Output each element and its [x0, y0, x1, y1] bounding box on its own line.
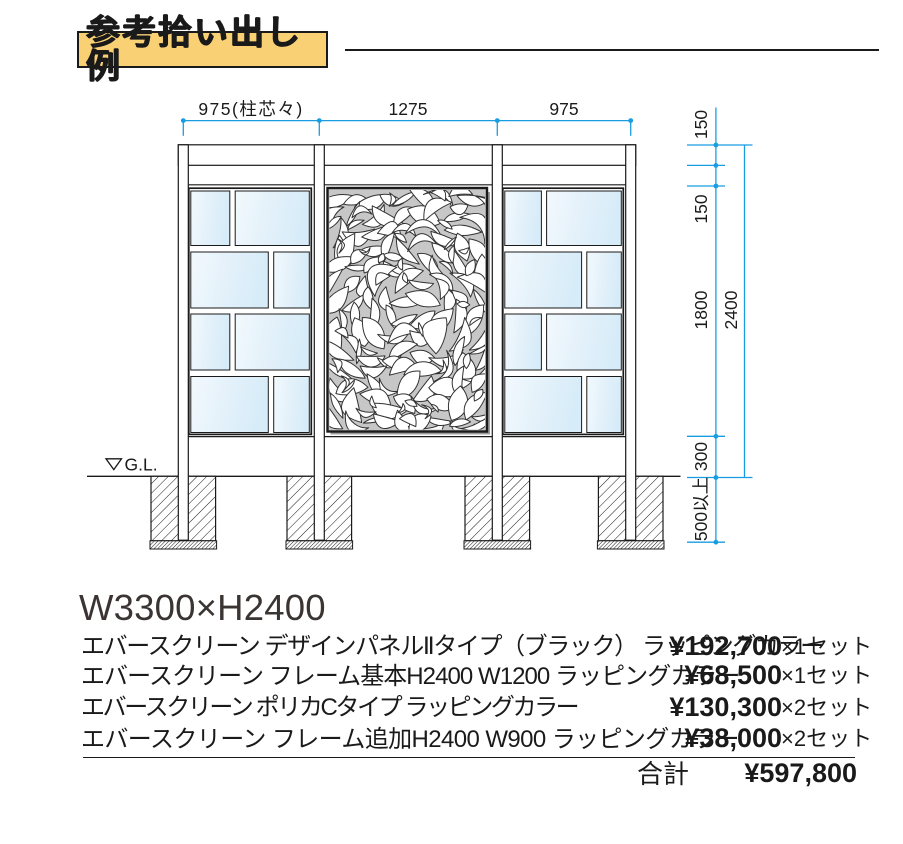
svg-text:G.L.: G.L.	[125, 455, 158, 475]
svg-text:300: 300	[691, 442, 711, 471]
svg-text:1275: 1275	[389, 99, 428, 119]
svg-text:2400: 2400	[721, 290, 741, 329]
svg-text:1800: 1800	[691, 290, 711, 329]
svg-text:150: 150	[691, 194, 711, 223]
svg-text:975(柱芯々): 975(柱芯々)	[198, 99, 303, 119]
svg-text:975: 975	[549, 99, 578, 119]
svg-text:150: 150	[691, 110, 711, 139]
svg-text:500以上: 500以上	[691, 477, 711, 541]
